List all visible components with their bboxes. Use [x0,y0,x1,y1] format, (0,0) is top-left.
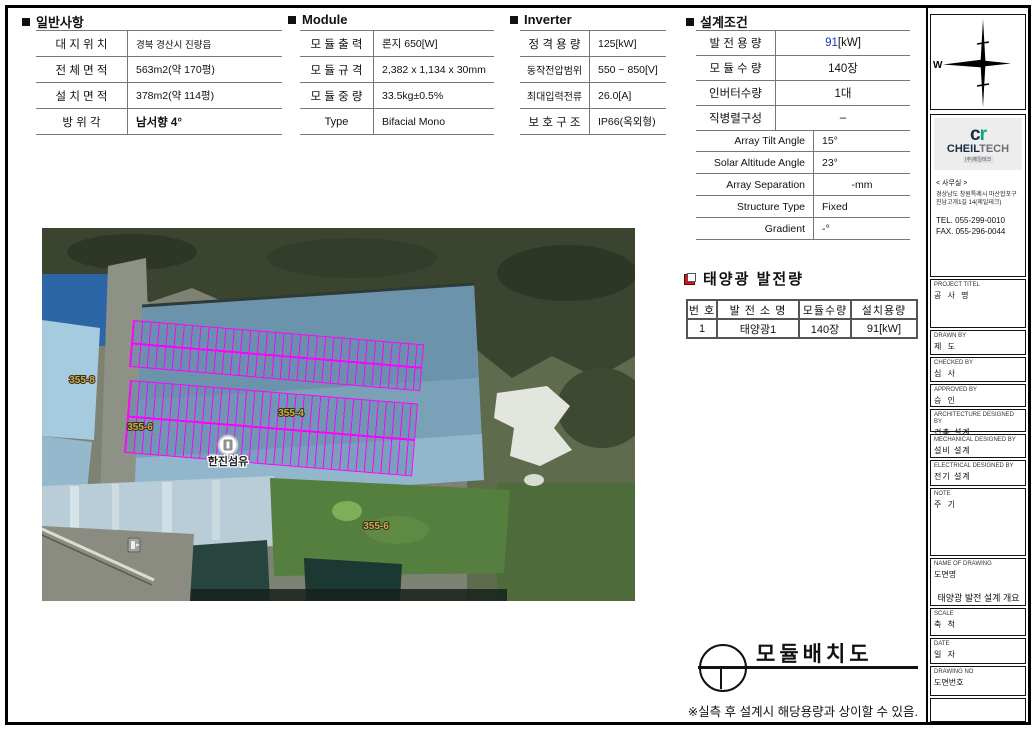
row-label: 발 전 용 량 [696,31,776,55]
compass-west-label: W [933,60,943,71]
field-label-kr: 축 척 [931,618,1025,630]
row-label: 모 듈 수 량 [696,56,776,80]
cell: 1 [687,319,717,338]
parcel-label: 355-6 [363,521,389,532]
drawing-name-value: 태양광 발전 설계 개요 [931,590,1025,604]
field-label-en: NOTE [931,489,1025,498]
table-row: Array Tilt Angle 15° [696,130,910,152]
field-label-en: MECHANICAL DESIGNED BY [931,435,1025,444]
field-label-en: PROJECT TITEL [931,280,1025,289]
field-approved-by: APPROVED BY 승 인 [930,384,1026,407]
row-label: 정 격 용 량 [520,31,590,56]
row-label: 보 호 구 조 [520,109,590,134]
module-section-title: Module [302,12,348,27]
field-empty [930,698,1026,722]
field-architecture-design: ARCHITECTURE DESIGNED BY 건축 설계 [930,409,1026,432]
field-label-en: DRAWING NO [931,667,1025,676]
capacity-unit: [kW] [838,37,861,49]
col-header: 번 호 [687,300,717,319]
parcel-label: 355-6 [127,422,153,433]
field-date: DATE 일 자 [930,638,1026,664]
drawing-symbol-circle [699,644,747,692]
general-section-title: 일반사항 [36,12,84,31]
design-table-kr: 발 전 용 량 91[kW] 모 듈 수 량 140장 인버터수량 1대 직병렬… [696,30,910,131]
table-row: 직병렬구성 – [696,106,910,131]
table-row: 설 치 면 적 378m2(약 114평) [36,83,282,109]
table-row: 모 듈 출 력 론지 650[W] [300,31,494,57]
field-label-en: APPROVED BY [931,385,1025,394]
parcel-label: 355-8 [69,375,95,386]
sidebar-divider [926,8,928,722]
row-value: 남서향 4° [128,109,282,134]
company-box: cr CHEILTECH (주)제일테크 < 사무실 > 경상남도 창원특례시 … [930,114,1026,277]
table-row: 모 듈 규 격 2,382 x 1,134 x 30mm [300,57,494,83]
footnote: ※실측 후 설계시 해당용량과 상이할 수 있음. [620,701,918,720]
section-marker-icon [288,16,296,24]
field-drawing-no: DRAWING NO 도면번호 [930,666,1026,696]
row-label: 방 위 각 [36,109,128,134]
field-label-kr: 일 자 [931,648,1025,660]
table-row: 발 전 용 량 91[kW] [696,31,910,56]
table-row: Solar Altitude Angle 23° [696,152,910,174]
capacity-number: 91 [825,37,838,49]
field-label-en: DATE [931,639,1025,648]
row-value: 경북 경산시 진량읍 [128,31,282,56]
field-label-kr: 공 사 명 [931,289,1025,301]
module-table: 모 듈 출 력 론지 650[W] 모 듈 규 격 2,382 x 1,134 … [300,30,494,135]
table-row: Type Bifacial Mono [300,109,494,135]
row-value: 23° [814,152,910,173]
row-label: Array Separation [696,174,814,195]
col-header: 설치용량 [851,300,917,319]
field-label-en: SCALE [931,609,1025,618]
row-label: 동작전압범위 [520,57,590,82]
row-label: 인버터수량 [696,81,776,105]
drawing-symbol-divider [720,668,722,689]
table-row: 대 지 위 치 경북 경산시 진량읍 [36,31,282,57]
section-marker-icon [686,18,694,26]
row-value: 563m2(약 170평) [128,57,282,82]
drawing-sheet: 일반사항 대 지 위 치 경북 경산시 진량읍 전 체 면 적 563m2(약 … [0,0,1036,730]
field-electrical-design: ELECTRICAL DESIGNED BY 전기 설계 [930,460,1026,486]
map-annotations: 355-8 355-6 355-4 355-6 한진섬유 [42,228,635,601]
field-label-kr: 주 기 [931,498,1025,510]
field-label-kr: 심 사 [931,367,1025,379]
field-label-kr: 전기 설계 [931,470,1025,482]
field-mechanical-design: MECHANICAL DESIGNED BY 설비 설계 [930,434,1026,458]
design-section-header: 설계조건 [686,12,748,31]
field-label-kr: 승 인 [931,394,1025,406]
poi-label: 한진섬유 [208,454,248,468]
row-label: 모 듈 규 격 [300,57,374,82]
company-subname: (주)제일테크 [963,156,993,163]
field-name-of-drawing: NAME OF DRAWING 도면명 태양광 발전 설계 개요 [930,558,1026,606]
row-label: 직병렬구성 [696,106,776,130]
cell: 91[kW] [851,319,917,338]
row-value: Fixed [814,196,910,217]
company-logo: cr CHEILTECH (주)제일테크 [934,118,1022,170]
row-value: Bifacial Mono [374,109,494,134]
row-value: -mm [814,174,910,195]
table-row: 방 위 각 남서향 4° [36,109,282,135]
inverter-table: 정 격 용 량 125[kW] 동작전압범위 550 ~ 850[V] 최대입력… [520,30,666,135]
field-scale: SCALE 축 척 [930,608,1026,636]
row-value: 125[kW] [590,31,666,56]
field-project-title: PROJECT TITEL 공 사 명 [930,279,1026,328]
drawing-title: 모듈배치도 [756,638,873,668]
row-label: Gradient [696,218,814,239]
compass-box: W [930,14,1026,110]
row-value: -° [814,218,910,239]
field-note: NOTE 주 기 [930,488,1026,556]
cell: 140장 [799,319,851,338]
company-address-2: 진남고개1길 14(제일테크) [936,199,1025,207]
row-label: 모 듈 출 력 [300,31,374,56]
table-row: 최대입력전류 26.0[A] [520,83,666,109]
table-row: 모 듈 중 량 33.5kg±0.5% [300,83,494,109]
row-label: 설 치 면 적 [36,83,128,108]
inverter-section-title: Inverter [524,12,572,27]
field-label-en: DRAWN BY [931,331,1025,340]
row-value: 550 ~ 850[V] [590,57,666,82]
row-value: 1대 [776,81,910,105]
field-drawn-by: DRAWN BY 제 도 [930,330,1026,355]
row-label: 최대입력전류 [520,83,590,108]
general-section-header: 일반사항 [22,12,84,31]
row-label: 대 지 위 치 [36,31,128,56]
generation-table: 번 호 발 전 소 명 모듈수량 설치용량 1 태양광1 140장 91[kW] [686,299,918,339]
table-row: 보 호 구 조 IP66(옥외형) [520,109,666,135]
table-row: Array Separation -mm [696,174,910,196]
row-label: Type [300,109,374,134]
general-table: 대 지 위 치 경북 경산시 진량읍 전 체 면 적 563m2(약 170평)… [36,30,282,135]
design-section-title: 설계조건 [700,12,748,31]
row-value: 140장 [776,56,910,80]
row-label: Solar Altitude Angle [696,152,814,173]
table-row: Gradient -° [696,218,910,240]
inverter-section-header: Inverter [510,12,572,27]
table-row: 인버터수량 1대 [696,81,910,106]
row-value: 378m2(약 114평) [128,83,282,108]
table-row: Structure Type Fixed [696,196,910,218]
company-name: CHEILTECH [947,143,1009,155]
field-label-en: ELECTRICAL DESIGNED BY [931,461,1025,470]
layers-icon [684,273,696,285]
field-label-en: ARCHITECTURE DESIGNED BY [931,410,1025,426]
row-label: Structure Type [696,196,814,217]
row-label: 전 체 면 적 [36,57,128,82]
design-table-en: Array Tilt Angle 15° Solar Altitude Angl… [696,130,910,240]
row-value: 15° [814,130,910,151]
field-label-kr: 제 도 [931,340,1025,352]
row-value: 2,382 x 1,134 x 30mm [374,57,494,82]
row-label: 모 듈 중 량 [300,83,374,108]
field-label-kr: 도면번호 [931,676,1025,688]
parcel-label: 355-4 [278,408,304,419]
row-value: IP66(옥외형) [590,109,666,134]
table-row: 동작전압범위 550 ~ 850[V] [520,57,666,83]
compass-icon: W [931,15,1025,109]
module-section-header: Module [288,12,348,27]
row-value: – [776,106,910,130]
cell: 태양광1 [717,319,799,338]
row-value: 91[kW] [776,31,910,55]
generation-section-header: 태양광 발전량 [684,268,804,289]
table-row: 정 격 용 량 125[kW] [520,31,666,57]
col-header: 모듈수량 [799,300,851,319]
field-label-en: CHECKED BY [931,358,1025,367]
field-checked-by: CHECKED BY 심 사 [930,357,1026,382]
company-tel: TEL. 055-299-0010 [936,215,1025,226]
logo-cr-icon: cr [970,126,986,143]
company-fax: FAX. 055-296-0044 [936,226,1025,237]
row-value: 론지 650[W] [374,31,494,56]
generation-section-title: 태양광 발전량 [703,268,804,289]
field-label-kr: 도면명 [931,568,1025,580]
row-value: 33.5kg±0.5% [374,83,494,108]
section-marker-icon [510,16,518,24]
row-value: 26.0[A] [590,83,666,108]
office-label: < 사무실 > [936,178,1025,188]
exit-icon [128,538,140,552]
row-label: Array Tilt Angle [696,130,814,151]
satellite-map: 355-8 355-6 355-4 355-6 한진섬유 [42,228,635,601]
field-label-en: NAME OF DRAWING [931,559,1025,568]
field-label-kr: 설비 설계 [931,444,1025,456]
col-header: 발 전 소 명 [717,300,799,319]
section-marker-icon [22,18,30,26]
company-address-1: 경상남도 창원특례시 마산합포구 [936,191,1025,199]
table-row: 전 체 면 적 563m2(약 170평) [36,57,282,83]
table-row: 모 듈 수 량 140장 [696,56,910,81]
